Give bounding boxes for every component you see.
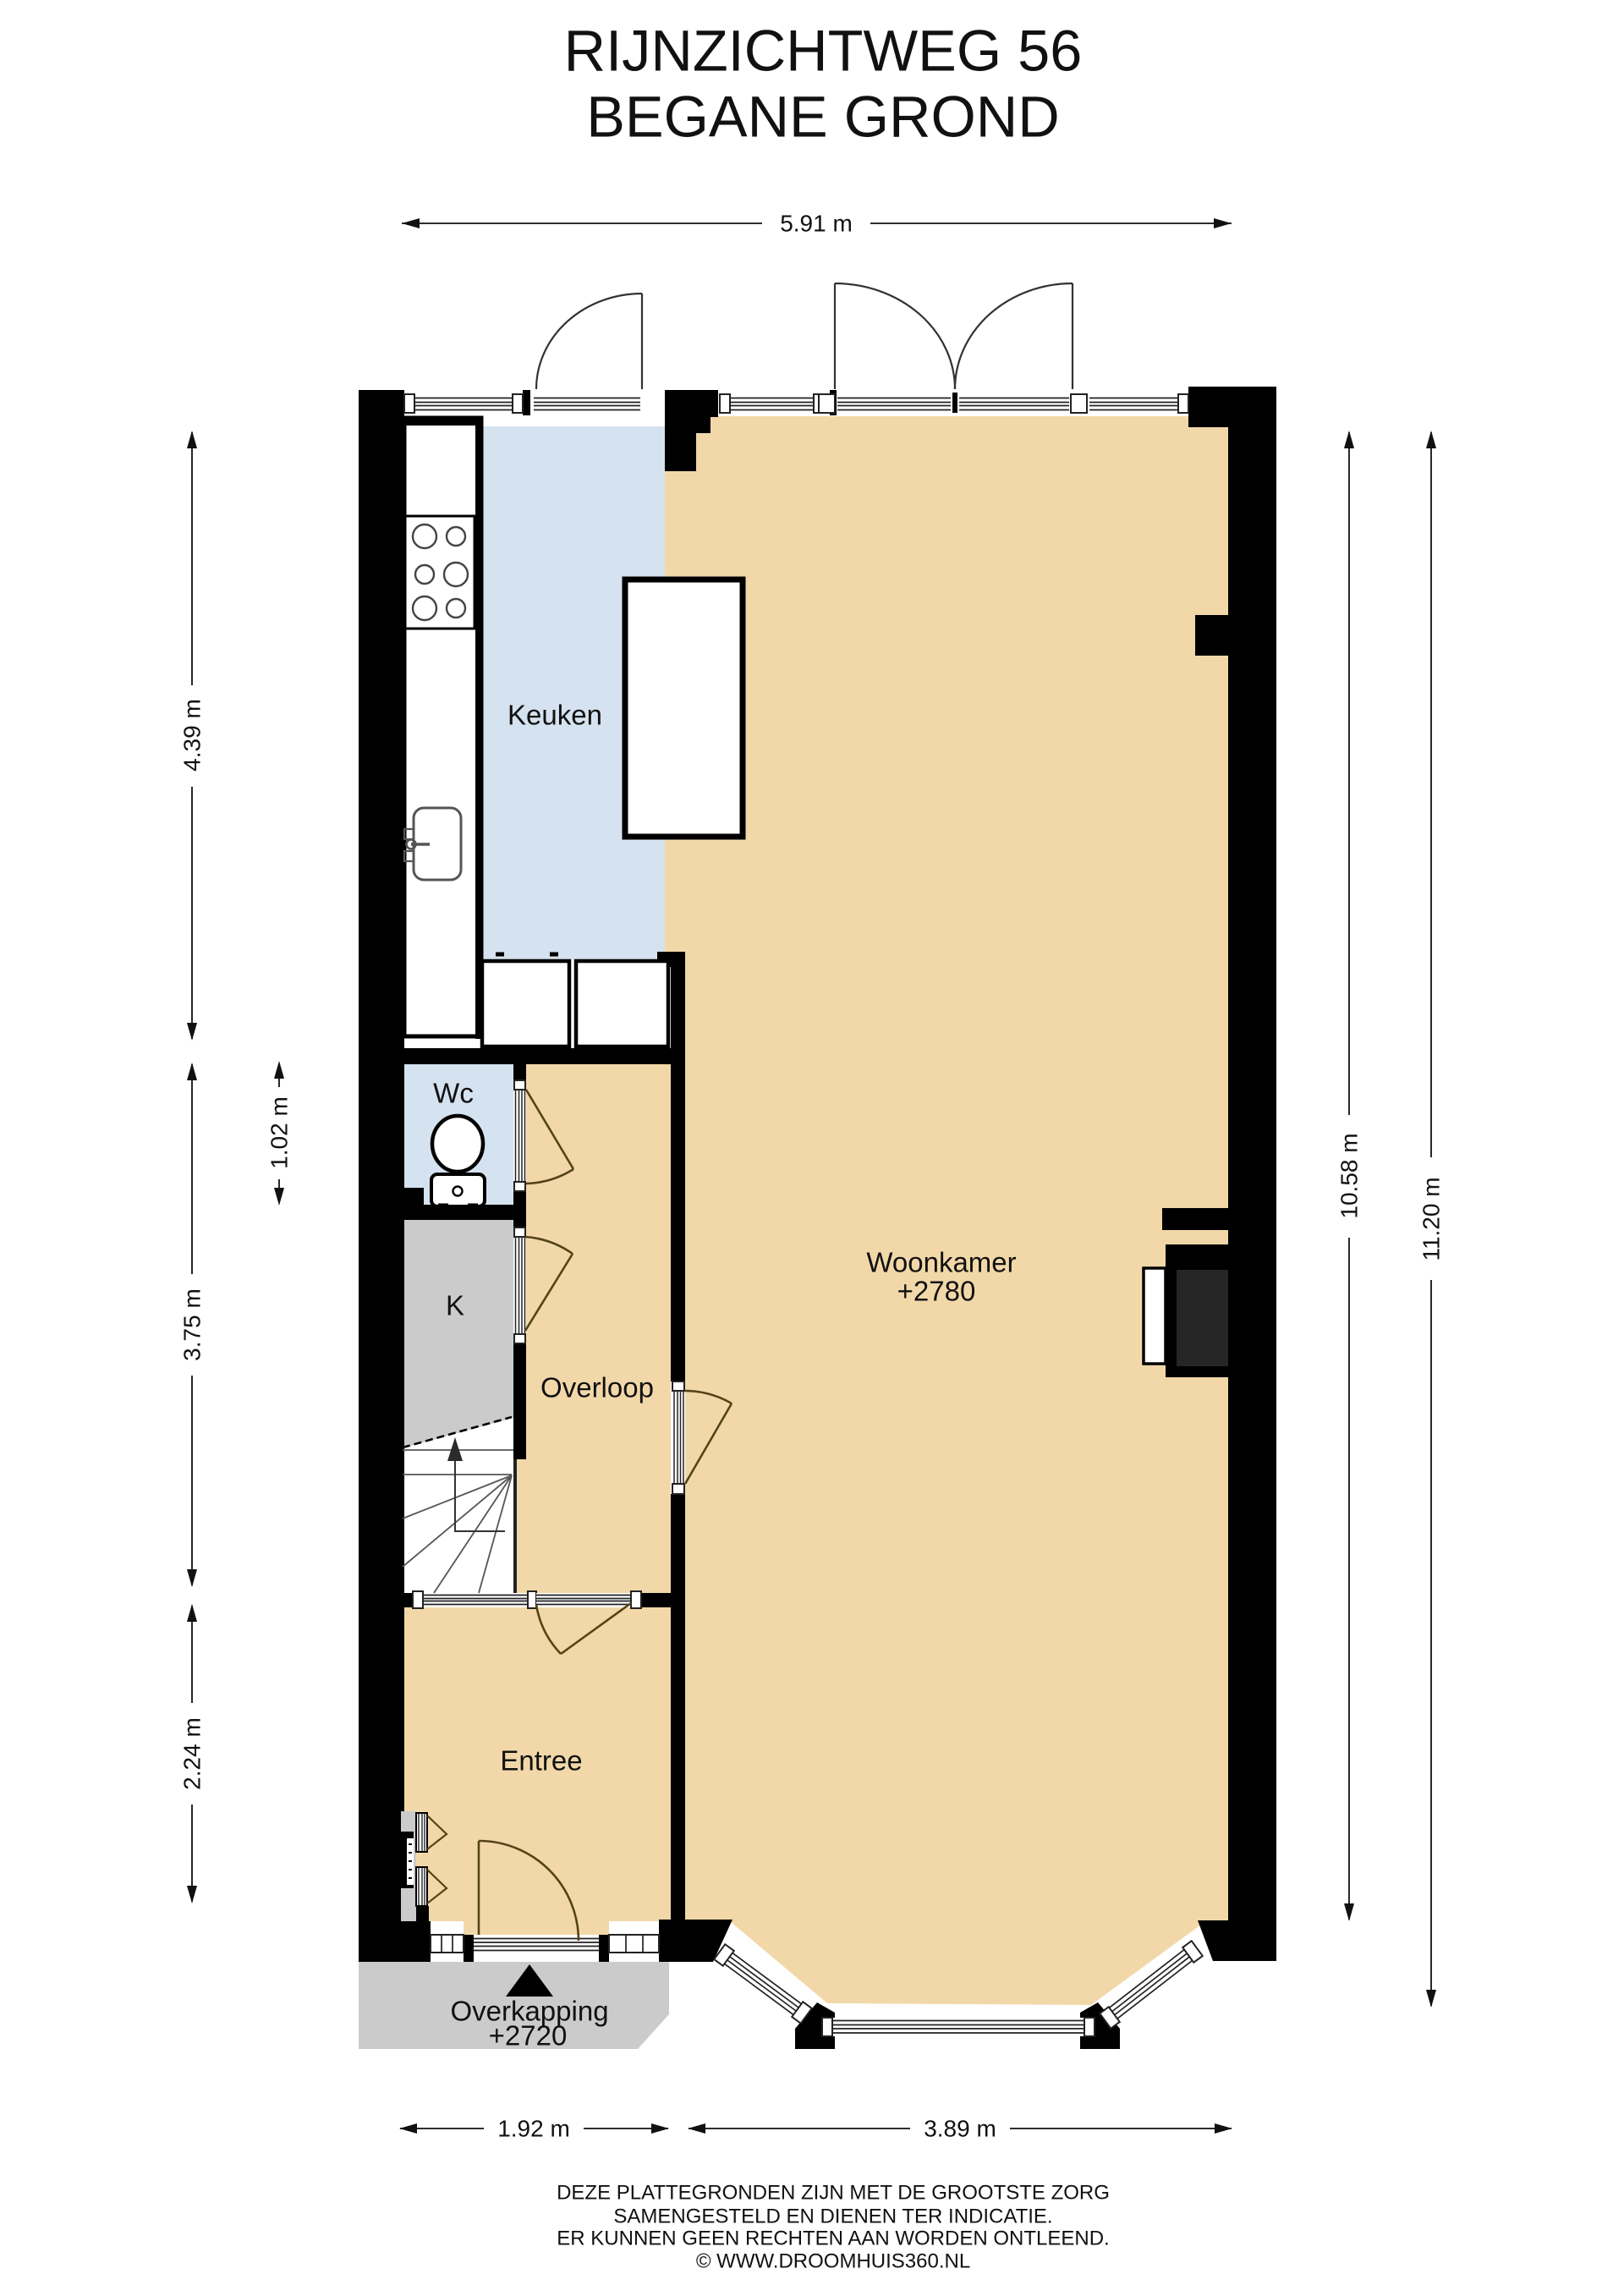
svg-text:1.02 m: 1.02 m	[266, 1096, 293, 1169]
svg-text:Entree: Entree	[500, 1745, 582, 1777]
svg-text:1.92 m: 1.92 m	[497, 2116, 570, 2142]
svg-text:10.58 m: 10.58 m	[1336, 1133, 1363, 1218]
svg-text:3.75 m: 3.75 m	[179, 1288, 206, 1361]
svg-text:DEZE PLATTEGRONDEN ZIJN MET DE: DEZE PLATTEGRONDEN ZIJN MET DE GROOTSTE …	[557, 2182, 1110, 2205]
svg-text:5.91 m: 5.91 m	[780, 211, 853, 237]
svg-text:Overloop: Overloop	[540, 1372, 654, 1403]
svg-text:BEGANE GROND: BEGANE GROND	[586, 85, 1060, 150]
svg-text:Woonkamer: Woonkamer	[866, 1247, 1016, 1278]
svg-text:2.24 m: 2.24 m	[179, 1717, 206, 1790]
svg-text:SAMENGESTELD EN DIENEN TER IND: SAMENGESTELD EN DIENEN TER INDICATIE.	[613, 2205, 1052, 2228]
svg-text:Wc: Wc	[433, 1078, 474, 1109]
svg-text:RIJNZICHTWEG 56: RIJNZICHTWEG 56	[564, 19, 1083, 84]
svg-text:© WWW.DROOMHUIS360.NL: © WWW.DROOMHUIS360.NL	[696, 2250, 970, 2273]
svg-text:+2780: +2780	[897, 1276, 976, 1307]
svg-text:+2720: +2720	[489, 2020, 568, 2052]
svg-text:11.20 m: 11.20 m	[1418, 1177, 1445, 1261]
svg-text:4.39 m: 4.39 m	[179, 699, 206, 772]
svg-text:ER KUNNEN GEEN RECHTEN AAN WOR: ER KUNNEN GEEN RECHTEN AAN WORDEN ONTLEE…	[557, 2227, 1109, 2250]
svg-text:Keuken: Keuken	[507, 700, 602, 731]
svg-text:K: K	[446, 1290, 464, 1321]
svg-text:3.89 m: 3.89 m	[924, 2116, 996, 2142]
